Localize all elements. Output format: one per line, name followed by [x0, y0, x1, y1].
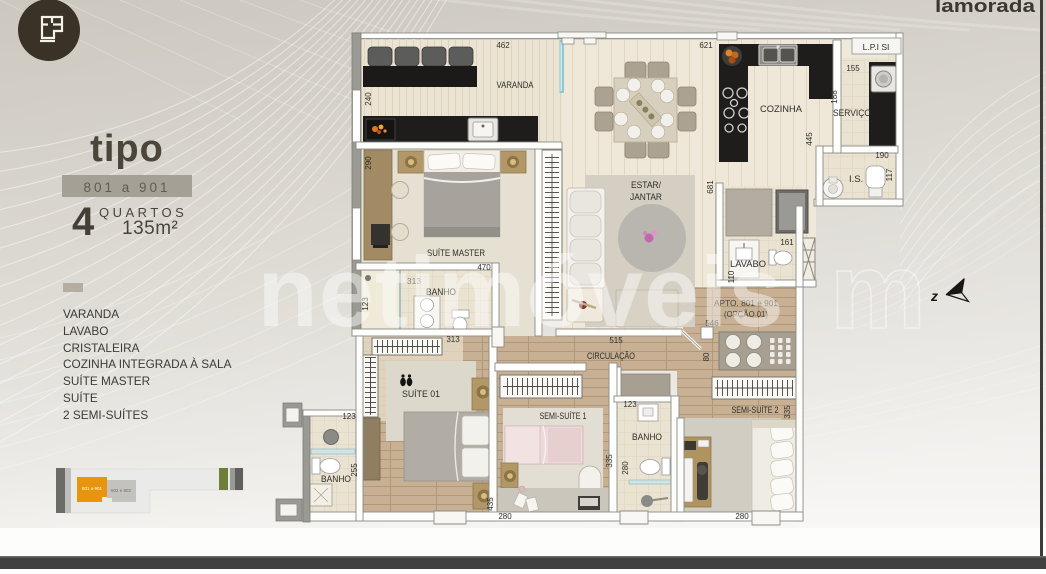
svg-text:VARANDA: VARANDA	[63, 307, 119, 321]
svg-text:L.P.I SI: L.P.I SI	[863, 42, 890, 52]
svg-text:280: 280	[735, 512, 749, 521]
svg-text:m: m	[830, 230, 926, 351]
svg-text:COZINHA: COZINHA	[760, 104, 803, 115]
svg-text:445: 445	[805, 132, 814, 146]
svg-text:BANHO: BANHO	[321, 474, 351, 485]
svg-text:190: 190	[875, 151, 889, 160]
svg-text:JANTAR: JANTAR	[630, 192, 662, 203]
svg-text:COZINHA INTEGRADA À SALA: COZINHA INTEGRADA À SALA	[63, 357, 232, 371]
svg-text:188: 188	[830, 90, 839, 104]
svg-text:280: 280	[498, 512, 512, 521]
svg-text:SUÍTE: SUÍTE	[63, 391, 98, 405]
svg-text:z: z	[930, 288, 938, 304]
svg-text:SUÍTE MASTER: SUÍTE MASTER	[63, 374, 150, 388]
svg-text:netimóveis: netimóveis	[257, 236, 784, 347]
svg-text:123: 123	[623, 400, 637, 409]
svg-text:240: 240	[364, 92, 373, 106]
svg-text:SUÍTE 01: SUÍTE 01	[402, 389, 440, 400]
svg-text:SEMI-SUÍTE 2: SEMI-SUÍTE 2	[732, 405, 779, 416]
svg-text:2 SEMI-SUÍTES: 2 SEMI-SUÍTES	[63, 408, 148, 422]
svg-text:SERVIÇO: SERVIÇO	[833, 108, 871, 119]
svg-text:462: 462	[496, 41, 510, 50]
svg-text:I.S.: I.S.	[849, 174, 863, 185]
svg-text:801 a 901: 801 a 901	[82, 486, 103, 491]
svg-text:135m²: 135m²	[122, 218, 178, 239]
svg-text:335: 335	[605, 454, 614, 468]
svg-text:255: 255	[350, 463, 359, 477]
svg-text:802 e 902: 802 e 902	[111, 488, 132, 493]
svg-text:CIRCULAÇÃO: CIRCULAÇÃO	[587, 351, 635, 362]
svg-text:290: 290	[364, 156, 373, 170]
svg-text:tipo: tipo	[90, 128, 164, 170]
svg-text:681: 681	[706, 180, 715, 194]
svg-text:lamorada: lamorada	[935, 0, 1036, 16]
svg-text:80: 80	[702, 352, 711, 361]
svg-text:155: 155	[846, 64, 860, 73]
svg-text:ESTAR/: ESTAR/	[631, 180, 661, 191]
svg-text:280: 280	[621, 461, 630, 475]
svg-text:VARANDA: VARANDA	[497, 80, 535, 91]
svg-text:CRISTALEIRA: CRISTALEIRA	[63, 341, 140, 355]
svg-text:621: 621	[699, 41, 713, 50]
svg-text:BANHO: BANHO	[632, 432, 662, 443]
svg-text:435: 435	[486, 497, 495, 511]
svg-text:801 a 901: 801 a 901	[83, 180, 170, 195]
svg-text:SEMI-SUÍTE 1: SEMI-SUÍTE 1	[540, 411, 587, 422]
svg-text:123: 123	[342, 412, 356, 421]
svg-text:117: 117	[885, 168, 894, 181]
svg-text:LAVABO: LAVABO	[63, 324, 108, 338]
svg-text:335: 335	[783, 405, 792, 419]
svg-text:4: 4	[72, 200, 95, 244]
